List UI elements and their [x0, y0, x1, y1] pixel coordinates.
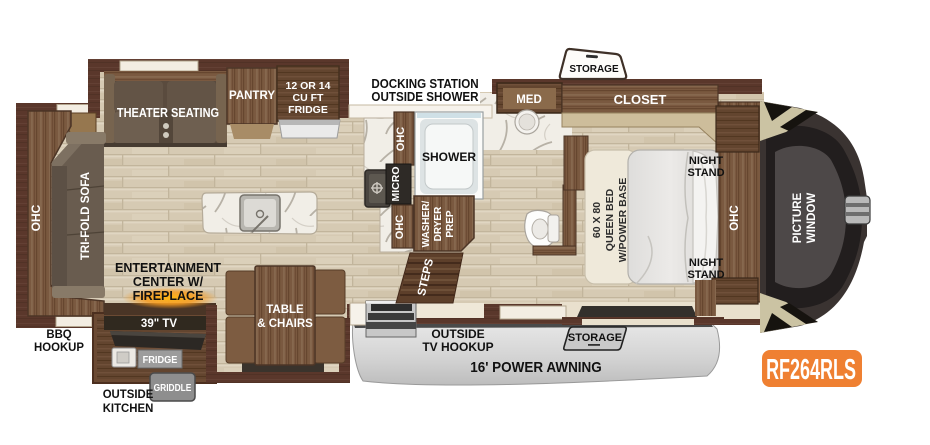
svg-text:OHC: OHC: [729, 205, 741, 231]
svg-text:W/POWER BASE: W/POWER BASE: [617, 178, 629, 263]
svg-text:STAND: STAND: [687, 269, 724, 281]
svg-text:FRIDGE: FRIDGE: [143, 355, 178, 366]
svg-text:ENTERTAINMENT: ENTERTAINMENT: [115, 261, 221, 275]
svg-text:PICTURE: PICTURE: [792, 192, 804, 243]
svg-text:OUTSIDE SHOWER: OUTSIDE SHOWER: [371, 90, 478, 104]
svg-text:OUTSIDE: OUTSIDE: [103, 388, 154, 401]
svg-text:THEATER SEATING: THEATER SEATING: [117, 106, 219, 120]
svg-text:CU FT: CU FT: [293, 92, 324, 104]
svg-text:FIREPLACE: FIREPLACE: [133, 289, 204, 303]
svg-text:FRIDGE: FRIDGE: [288, 104, 328, 116]
svg-text:RF264RLS: RF264RLS: [766, 354, 856, 386]
svg-text:OHC: OHC: [394, 215, 406, 240]
svg-text:SHOWER: SHOWER: [422, 150, 476, 164]
svg-text:WINDOW: WINDOW: [806, 193, 818, 244]
svg-text:KITCHEN: KITCHEN: [103, 402, 154, 415]
svg-text:TV HOOKUP: TV HOOKUP: [422, 340, 493, 354]
svg-text:DRYER: DRYER: [433, 206, 444, 241]
svg-text:NIGHT: NIGHT: [689, 155, 724, 167]
svg-text:TRI-FOLD SOFA: TRI-FOLD SOFA: [80, 172, 92, 260]
svg-text:WASHER/: WASHER/: [421, 200, 432, 247]
svg-text:HOOKUP: HOOKUP: [34, 341, 84, 354]
svg-text:QUEEN BED: QUEEN BED: [604, 188, 616, 251]
svg-text:STORAGE: STORAGE: [569, 64, 619, 75]
svg-text:GRIDDLE: GRIDDLE: [154, 382, 192, 393]
svg-text:16' POWER AWNING: 16' POWER AWNING: [470, 359, 602, 376]
svg-text:STORAGE: STORAGE: [568, 332, 622, 344]
svg-text:OHC: OHC: [395, 127, 407, 152]
svg-text:MICRO: MICRO: [390, 167, 402, 202]
svg-text:BBQ: BBQ: [46, 328, 71, 341]
svg-text:12 OR 14: 12 OR 14: [286, 80, 331, 92]
svg-text:OUTSIDE: OUTSIDE: [431, 327, 484, 341]
svg-text:& CHAIRS: & CHAIRS: [257, 318, 313, 330]
svg-text:39" TV: 39" TV: [141, 318, 177, 330]
svg-text:CENTER W/: CENTER W/: [133, 275, 204, 289]
svg-text:MED: MED: [516, 94, 542, 106]
svg-text:NIGHT: NIGHT: [689, 257, 724, 269]
svg-text:PREP: PREP: [445, 210, 456, 238]
svg-text:OHC: OHC: [29, 204, 43, 231]
svg-text:CLOSET: CLOSET: [614, 92, 667, 107]
svg-text:TABLE: TABLE: [266, 304, 304, 316]
svg-text:PANTRY: PANTRY: [229, 90, 275, 102]
svg-text:60 X 80: 60 X 80: [591, 202, 603, 238]
svg-text:STAND: STAND: [687, 167, 724, 179]
